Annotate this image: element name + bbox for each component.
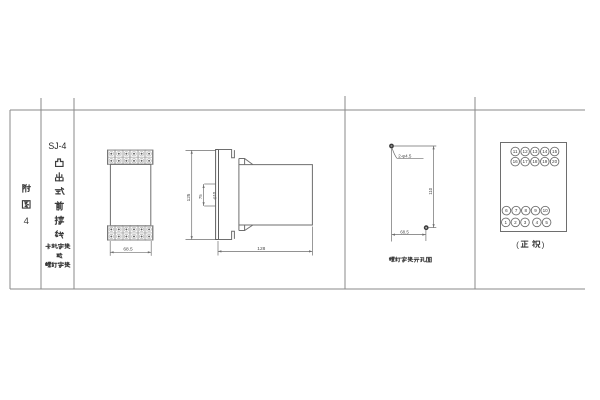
svg-text:5: 5	[545, 220, 548, 225]
svg-text:2-φ4.5: 2-φ4.5	[398, 153, 412, 158]
svg-text:4: 4	[24, 216, 29, 227]
svg-text:18: 18	[532, 159, 538, 164]
svg-text:19: 19	[542, 159, 548, 164]
svg-text:SJ-4: SJ-4	[48, 141, 66, 151]
svg-text:68.5: 68.5	[123, 247, 133, 253]
svg-text:15: 15	[552, 149, 558, 154]
svg-text:17: 17	[523, 159, 529, 164]
svg-text:68.5: 68.5	[400, 229, 409, 234]
svg-text:20: 20	[552, 159, 558, 164]
svg-text:14: 14	[542, 149, 548, 154]
svg-text:11: 11	[513, 149, 518, 154]
svg-text:75: 75	[198, 194, 203, 199]
svg-text:3: 3	[524, 220, 527, 225]
svg-text:8: 8	[525, 208, 528, 213]
svg-text:7: 7	[515, 208, 518, 213]
svg-text:110: 110	[428, 187, 433, 195]
svg-text:128: 128	[257, 246, 265, 252]
svg-text:4: 4	[536, 220, 539, 225]
svg-text:13: 13	[532, 149, 538, 154]
svg-text:(: (	[516, 240, 519, 250]
svg-text:10: 10	[543, 208, 549, 213]
svg-text:6: 6	[505, 208, 508, 213]
svg-text:1: 1	[505, 220, 508, 225]
svg-text:): )	[542, 240, 545, 250]
svg-text:9: 9	[534, 208, 537, 213]
svg-text:12: 12	[523, 149, 529, 154]
svg-text:2: 2	[514, 220, 517, 225]
svg-text:16: 16	[513, 159, 519, 164]
svg-text:125: 125	[186, 193, 191, 201]
